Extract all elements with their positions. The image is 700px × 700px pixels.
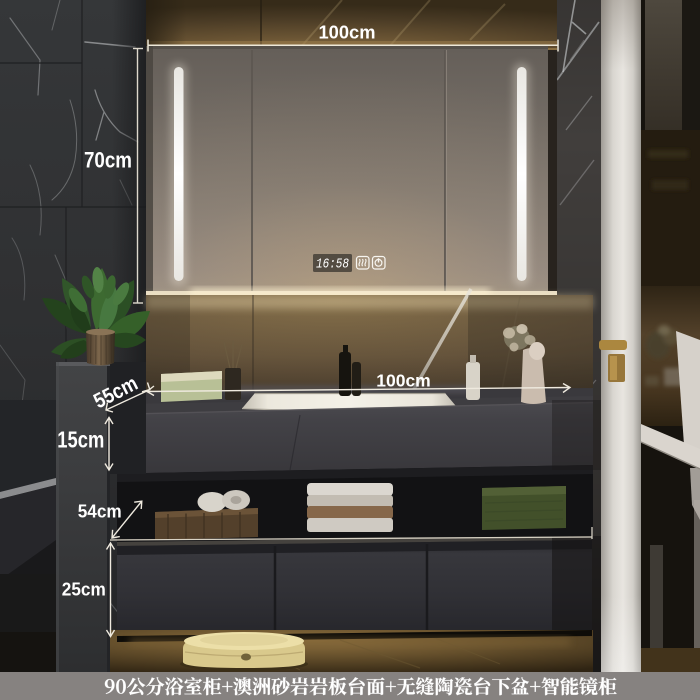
svg-text:15cm: 15cm [57, 426, 104, 452]
svg-text:70cm: 70cm [84, 148, 132, 173]
svg-text:100cm: 100cm [319, 22, 376, 42]
svg-text:25cm: 25cm [62, 579, 106, 600]
svg-text:16:58: 16:58 [316, 258, 349, 273]
svg-text:54cm: 54cm [78, 500, 122, 521]
svg-text:100cm: 100cm [376, 371, 431, 391]
